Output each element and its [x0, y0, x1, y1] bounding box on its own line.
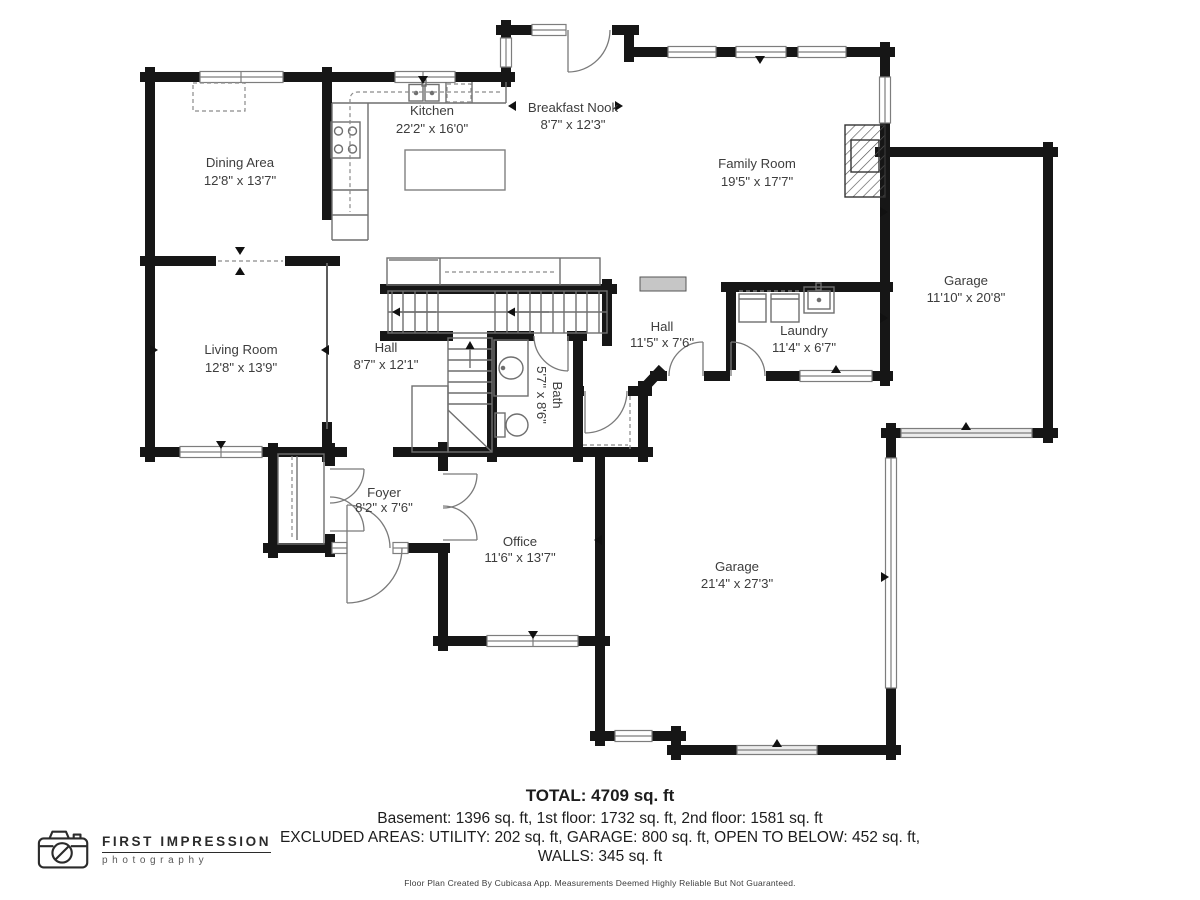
room-label-hall-main-dims: 8'7" x 12'1" [354, 357, 419, 372]
window [886, 458, 897, 688]
foyer-closet [278, 454, 324, 544]
door-breakfast-nook [568, 30, 610, 72]
stairs-upper [388, 291, 607, 333]
room-label-foyer-dims: 8'2" x 7'6" [355, 500, 413, 515]
window [332, 543, 347, 554]
room-label-office-dims: 11'6" x 13'7" [484, 550, 556, 565]
laundry-sink [804, 283, 834, 313]
door-closet [585, 391, 627, 433]
kitchen-island [405, 150, 505, 190]
fireplace [845, 125, 885, 197]
room-label-living-dims: 12'8" x 13'9" [205, 360, 278, 375]
doors [330, 30, 765, 603]
window [501, 38, 512, 67]
room-label-garage-side-dims: 11'10" x 20'8" [927, 290, 1006, 305]
logo-text: FIRST IMPRESSION photography [102, 834, 271, 866]
window [393, 543, 408, 554]
room-label-hall-main-name: Hall [375, 340, 398, 355]
room-label-hall-rear-name: Hall [651, 319, 674, 334]
room-label-kitchen-name: Kitchen [410, 103, 454, 118]
window [615, 731, 652, 742]
window [532, 25, 566, 36]
logo-brand-text: FIRST IMPRESSION [102, 834, 271, 853]
window [798, 47, 846, 58]
logo-tagline-text: photography [102, 855, 271, 866]
room-label-foyer-name: Foyer [367, 485, 401, 500]
room-label-garage-main-name: Garage [715, 559, 759, 574]
stairs-lower [412, 338, 492, 452]
room-label-laundry-name: Laundry [780, 323, 828, 338]
window [200, 72, 283, 83]
room-label-garage-main-dims: 21'4" x 27'3" [701, 576, 774, 591]
toilet [495, 413, 528, 437]
room-label-hall-rear-dims: 11'5" x 7'6" [630, 335, 694, 350]
total-area-text: TOTAL: 4709 sq. ft [0, 786, 1200, 806]
camera-icon [36, 826, 94, 874]
window [736, 47, 786, 58]
room-label-nook-dims: 8'7" x 12'3" [541, 117, 606, 132]
room-label-laundry-dims: 11'4" x 6'7" [772, 340, 836, 355]
room-label-dining-dims: 12'8" x 13'7" [204, 173, 277, 188]
dryer [771, 294, 799, 322]
washer [739, 294, 766, 322]
room-label-family-dims: 19'5" x 17'7" [721, 174, 794, 189]
company-logo: FIRST IMPRESSION photography [36, 826, 271, 874]
room-label-garage-side-name: Garage [944, 273, 988, 288]
room-label-kitchen-dims: 22'2" x 16'0" [396, 121, 469, 136]
room-label-bath-dims: 5'7" x 8'6" [534, 366, 549, 424]
stair-landing [387, 258, 600, 285]
window [880, 77, 891, 123]
room-label-office-name: Office [503, 534, 537, 549]
stove [331, 122, 360, 158]
half-wall [640, 277, 686, 291]
kitchen-sink [409, 80, 439, 101]
interior-lines [278, 80, 834, 544]
room-label-living-name: Living Room [204, 342, 277, 357]
room-label-dining-name: Dining Area [206, 155, 275, 170]
dining-sideboard [193, 83, 245, 111]
room-label-nook-name: Breakfast Nook [528, 100, 619, 115]
window [668, 47, 716, 58]
room-label-bath-name: Bath [550, 381, 565, 408]
floor-plan-drawing: Dining Area 12'8" x 13'7" Kitchen 22'2" … [0, 0, 1200, 775]
bath-sink [494, 340, 528, 396]
disclaimer-text: Floor Plan Created By Cubicasa App. Meas… [0, 878, 1200, 888]
room-label-family-name: Family Room [718, 156, 796, 171]
floor-plan-page: Dining Area 12'8" x 13'7" Kitchen 22'2" … [0, 0, 1200, 900]
